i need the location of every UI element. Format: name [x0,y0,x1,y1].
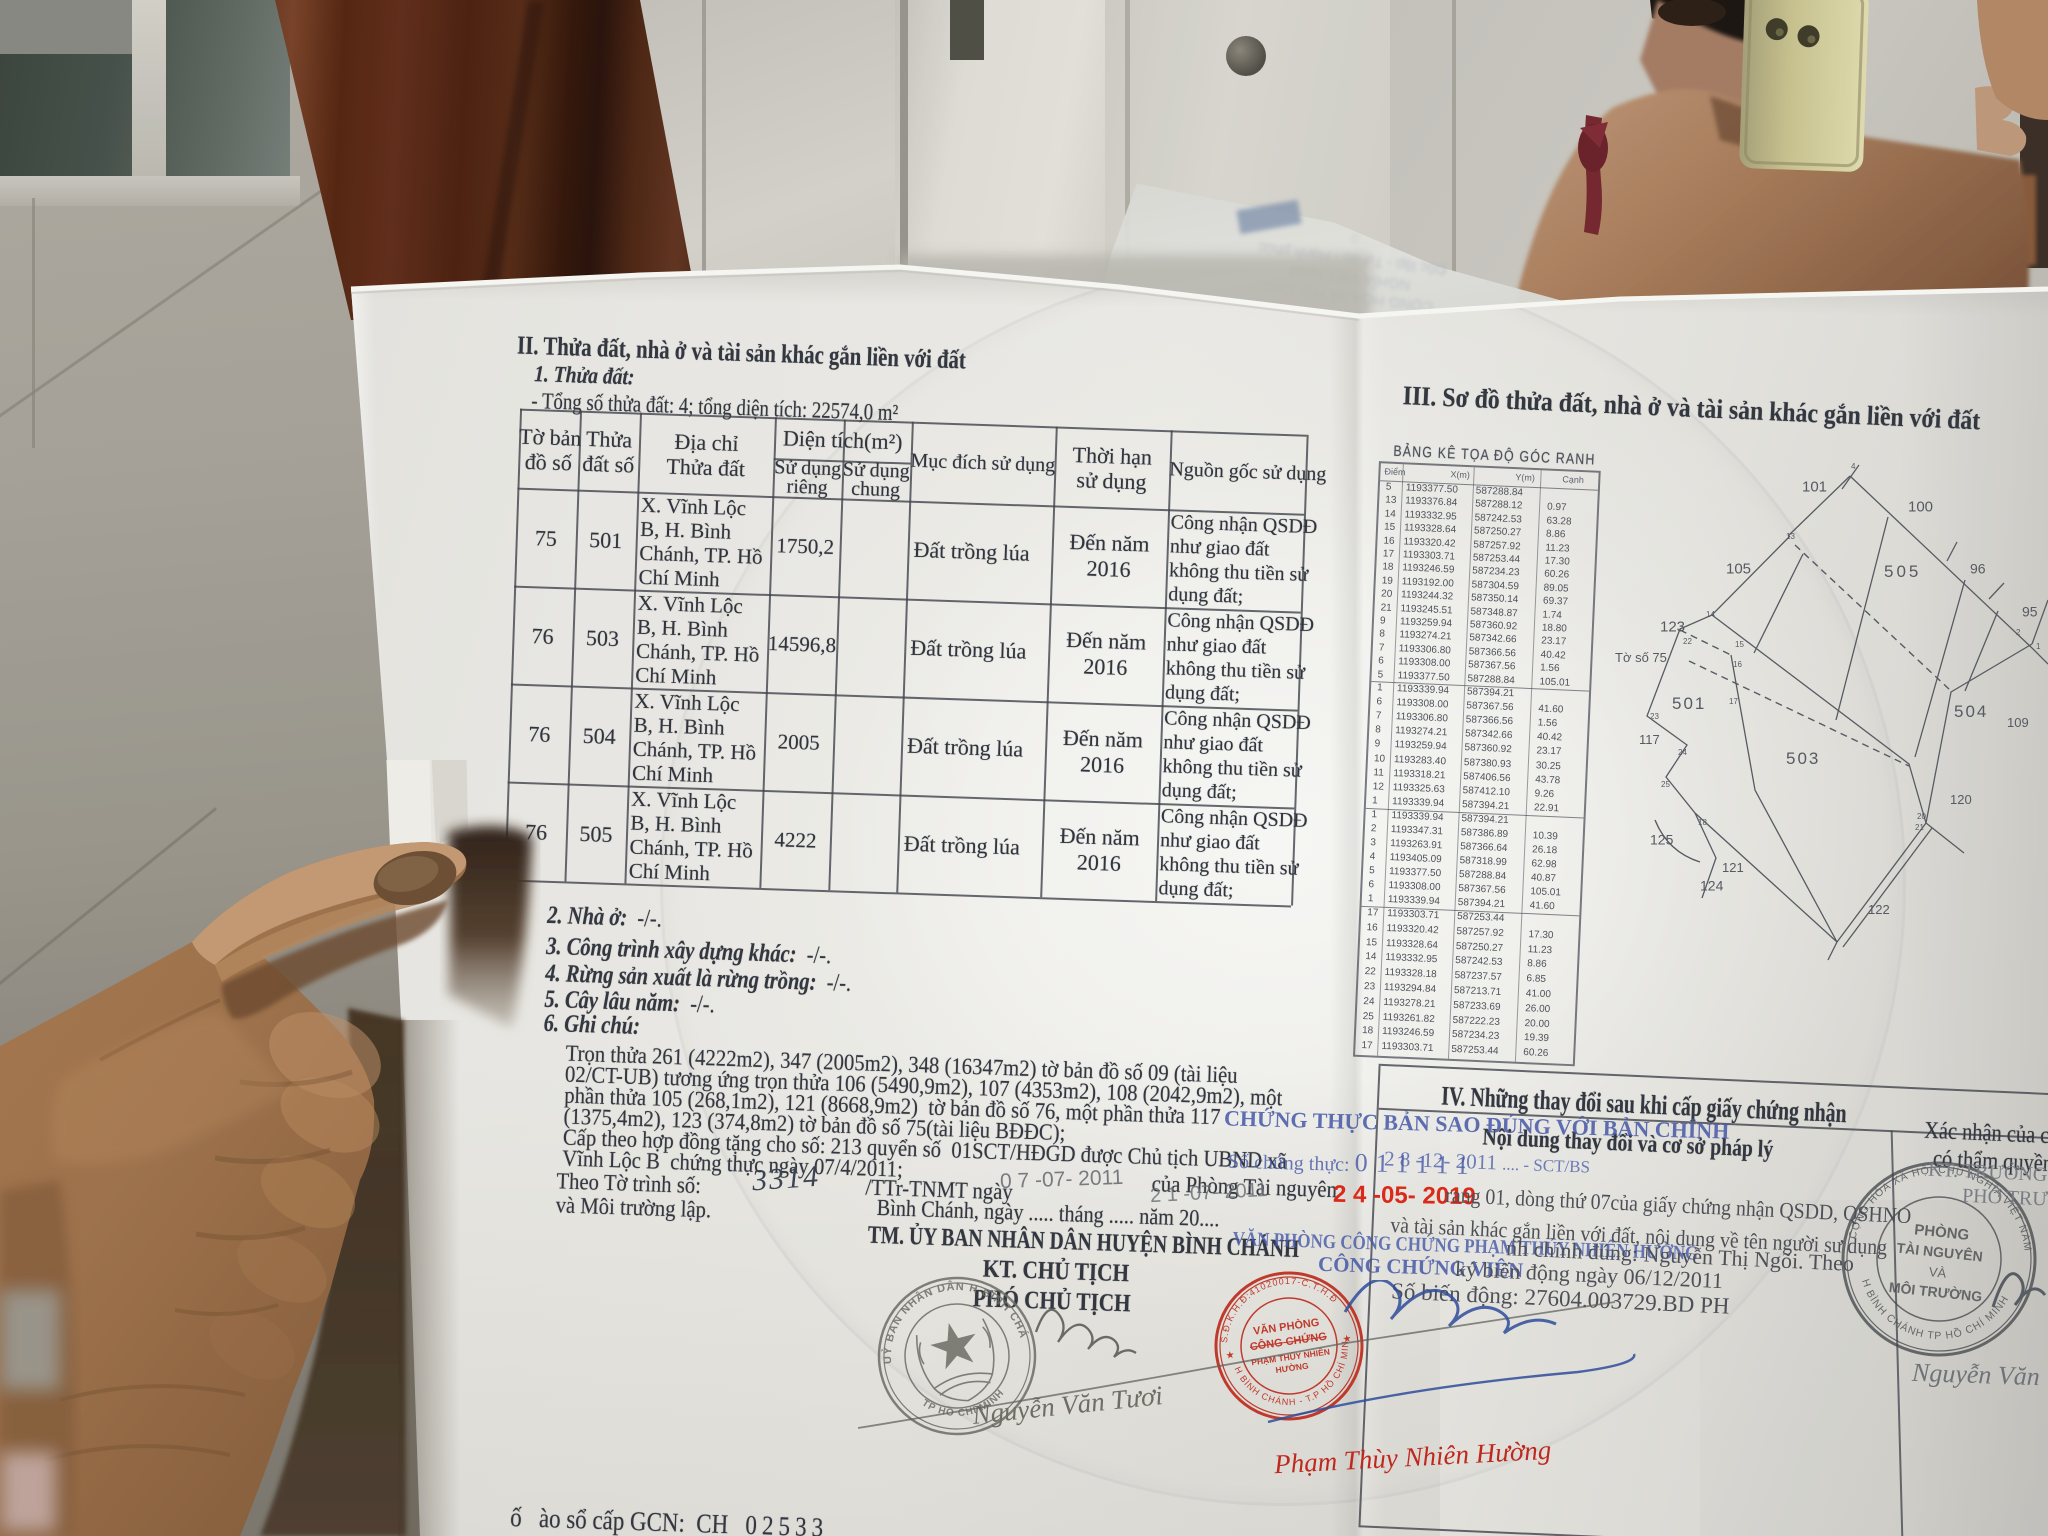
svg-text:125: 125 [1650,832,1674,848]
svg-text:503: 503 [1786,749,1820,768]
svg-text:122: 122 [1868,902,1890,917]
svg-text:16: 16 [1733,660,1742,669]
svg-text:21: 21 [1915,823,1924,832]
svg-text:4: 4 [1851,462,1856,471]
svg-text:95: 95 [2022,604,2038,620]
svg-text:123: 123 [1660,618,1685,635]
svg-text:13: 13 [1786,532,1795,541]
svg-text:TÀI NGUYÊN: TÀI NGUYÊN [1896,1239,1984,1265]
svg-text:124: 124 [1700,878,1724,894]
svg-text:117: 117 [1639,732,1660,747]
svg-text:VÀ: VÀ [1928,1264,1947,1281]
svg-text:PHÒNG: PHÒNG [1914,1220,1971,1244]
svg-text:1: 1 [2036,642,2041,651]
svg-text:18: 18 [1698,818,1707,827]
svg-text:101: 101 [1802,478,1827,495]
svg-text:25: 25 [1661,780,1670,789]
svg-text:14: 14 [1706,610,1715,619]
svg-text:109: 109 [2007,715,2029,730]
svg-text:22: 22 [1683,637,1692,646]
svg-text:96: 96 [1970,561,1986,577]
svg-text:100: 100 [1908,498,1933,515]
svg-text:505: 505 [1884,562,1921,581]
svg-text:121: 121 [1722,860,1744,875]
svg-text:MÔI TRƯỜNG: MÔI TRƯỜNG [1888,1278,1983,1305]
svg-text:504: 504 [1954,702,1988,721]
svg-text:105: 105 [1726,560,1751,577]
svg-text:17: 17 [1729,697,1738,706]
svg-text:20: 20 [1917,812,1926,821]
svg-text:15: 15 [1735,640,1744,649]
svg-text:501: 501 [1672,694,1706,713]
svg-text:120: 120 [1950,792,1972,807]
svg-text:2: 2 [2016,628,2021,637]
svg-text:23: 23 [1650,712,1659,721]
svg-text:24: 24 [1678,748,1687,757]
svg-text:Tờ số 75: Tờ số 75 [1615,650,1667,665]
